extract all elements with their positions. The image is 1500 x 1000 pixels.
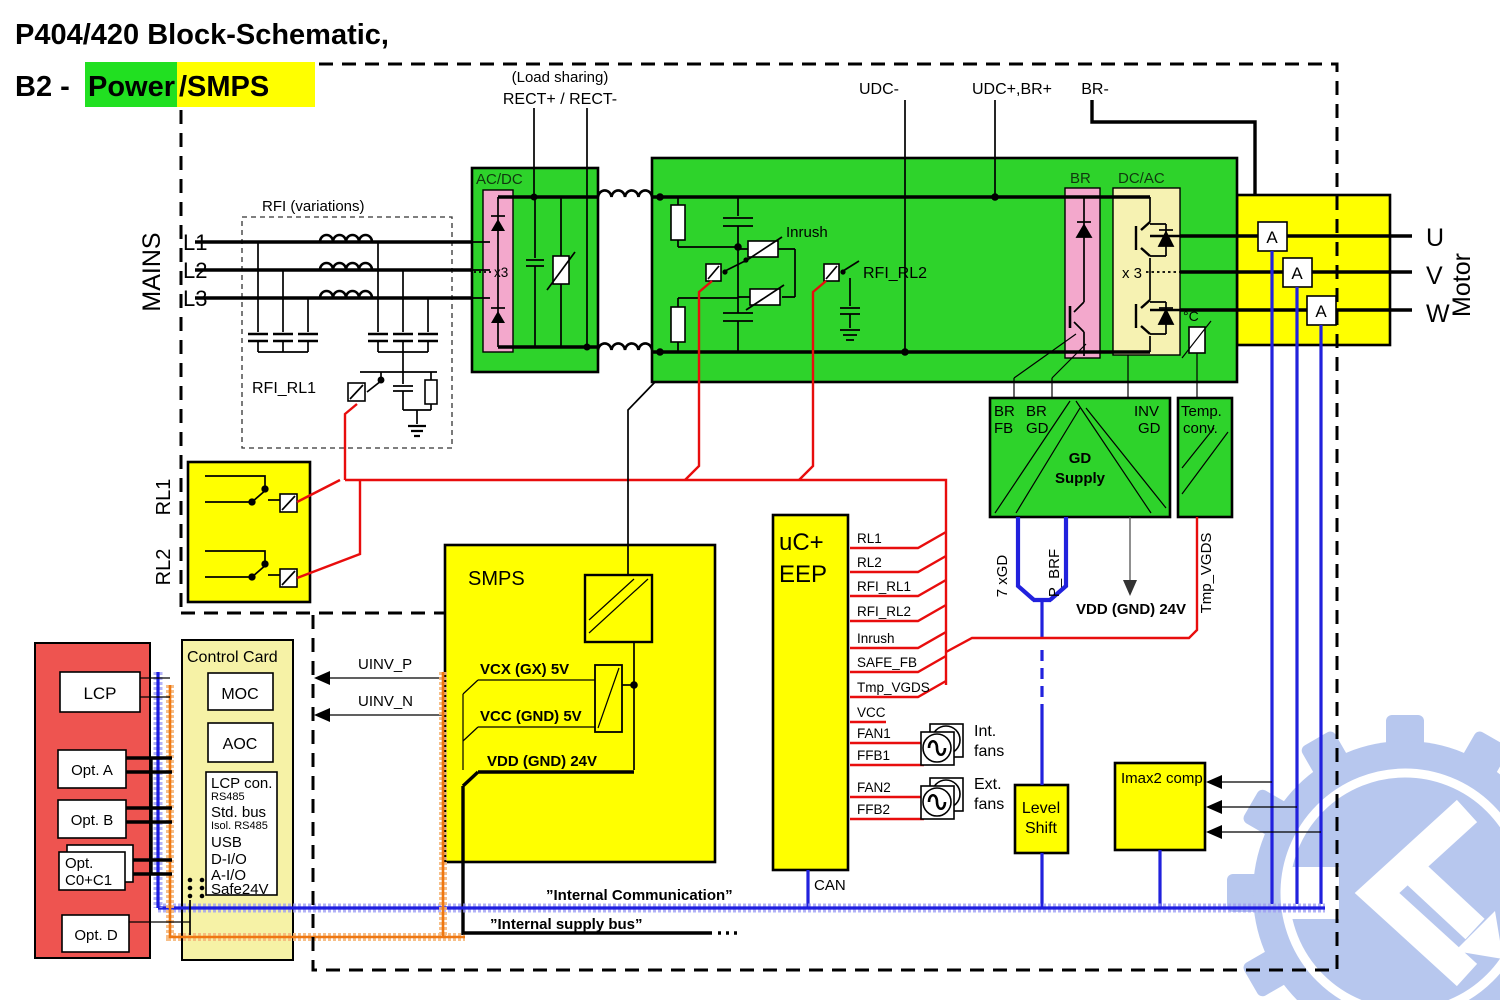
acdc-label: AC/DC (476, 171, 523, 188)
sig-rl2: RL2 (857, 555, 882, 570)
gd7-label: 7 xGD (994, 555, 1011, 598)
gd-br-gd-1: BR (1026, 403, 1047, 420)
temp-c-label: °C (1183, 308, 1199, 324)
sig-vcc: VCC (857, 705, 886, 720)
gd-inv-1: INV (1134, 403, 1159, 420)
mains-l1: L1 (183, 230, 207, 255)
aoc-label: AOC (223, 736, 258, 753)
amp-sensor-w-label: A (1315, 302, 1327, 321)
mains-l2: L2 (183, 258, 207, 283)
smps-block (445, 545, 715, 862)
phase-u-label: U (1426, 224, 1444, 252)
gd-supply-name-2: Supply (1055, 470, 1106, 487)
page-title-line2-prefix: B2 - (15, 71, 70, 103)
pbrf-label: P_BRF (1046, 549, 1063, 597)
gd-br-gd-2: GD (1026, 420, 1049, 437)
sig-ffb2: FFB2 (857, 802, 890, 817)
sig-fan2: FAN2 (857, 780, 891, 795)
io-std-bus: Std. bus (211, 804, 266, 821)
vcx-label: VCX (GX) 5V (480, 661, 569, 678)
inverter-x3-label: x 3 (1122, 265, 1142, 282)
internal-supply-bus-label: ”Internal supply bus” (490, 916, 643, 933)
temp-conv-2: conv. (1183, 420, 1218, 437)
schematic-page: P404/420 Block-Schematic, B2 - Power /SM… (0, 0, 1500, 1000)
rect-label: RECT+ / RECT- (503, 91, 617, 108)
opt-c-label-2: C0+C1 (65, 872, 112, 889)
gear-logo-watermark (1227, 715, 1500, 1000)
control-card-title: Control Card (187, 649, 278, 666)
gd-supply-name-1: GD (1069, 450, 1092, 467)
sig-inrush: Inrush (857, 631, 895, 646)
vdd-smps-label: VDD (GND) 24V (487, 753, 597, 770)
block-schematic: P404/420 Block-Schematic, B2 - Power /SM… (0, 0, 1500, 1000)
gd-br-fb-2: FB (994, 420, 1013, 437)
mains-label: MAINS (138, 232, 166, 311)
page-title-line1: P404/420 Block-Schematic, (15, 19, 389, 51)
imax2-label: Imax2 comp. (1121, 770, 1207, 787)
sig-rfi-rl1: RFI_RL1 (857, 579, 911, 594)
io-safe24v: Safe24V (211, 881, 269, 898)
opt-d-label: Opt. D (74, 927, 118, 944)
uc-name-2: EEP (779, 561, 827, 588)
io-rs485: RS485 (211, 791, 245, 803)
level-shift-2: Shift (1025, 820, 1058, 837)
sig-tmp-vgds: Tmp_VGDS (857, 680, 930, 695)
uc-name-1: uC+ (779, 529, 824, 556)
internal-fans-icon (921, 724, 963, 765)
br-strip-label: BR (1070, 170, 1091, 187)
motor-label: Motor (1448, 253, 1476, 317)
vcc5-label: VCC (GND) 5V (480, 708, 582, 725)
uinv-p-label: UINV_P (358, 656, 412, 673)
external-fans-icon (921, 778, 963, 819)
rfi-filter-circuit (248, 235, 438, 436)
io-isol-rs485: Isol. RS485 (211, 820, 268, 832)
ext-fans-1: Ext. (974, 776, 1002, 793)
br-minus-label: BR- (1081, 81, 1109, 98)
acdc-x3-label: x3 (494, 265, 508, 280)
uc-signal-wires (850, 532, 946, 819)
sig-ffb1: FFB1 (857, 748, 890, 763)
smps-title: SMPS (468, 568, 525, 590)
level-shift-block (1015, 785, 1068, 853)
amp-sensor-v-label: A (1291, 264, 1303, 283)
int-fans-1: Int. (974, 723, 996, 740)
page-title-power: Power (88, 71, 175, 103)
phase-w-label: W (1426, 300, 1450, 328)
temp-conv-1: Temp. (1181, 403, 1222, 420)
vdd-arrow (1123, 580, 1137, 596)
level-shift-1: Level (1022, 800, 1060, 817)
rl2-label: RL2 (153, 549, 175, 586)
rfi-rl2-label: RFI_RL2 (863, 265, 927, 282)
io-usb: USB (211, 834, 242, 851)
internal-communication-label: ”Internal Communication” (546, 887, 733, 904)
mains-l3: L3 (183, 286, 207, 311)
moc-label: MOC (221, 686, 258, 703)
int-fans-2: fans (974, 743, 1004, 760)
rfi-rl1-label: RFI_RL1 (252, 380, 316, 397)
gd-br-fb-1: BR (994, 403, 1015, 420)
br-strip (1065, 188, 1100, 358)
ext-fans-2: fans (974, 796, 1004, 813)
rl1-label: RL1 (153, 479, 175, 516)
opt-a-label: Opt. A (71, 762, 113, 779)
sig-rfi-rl2: RFI_RL2 (857, 604, 911, 619)
load-sharing-label: (Load sharing) (512, 69, 609, 86)
udc-plus-br-label: UDC+,BR+ (972, 81, 1052, 98)
amp-sensor-u-label: A (1266, 228, 1278, 247)
sig-rl1: RL1 (857, 531, 882, 546)
gd-inv-2: GD (1138, 420, 1161, 437)
io-dio: D-I/O (211, 851, 247, 868)
uinv-n-label: UINV_N (358, 693, 413, 710)
rfi-box-title: RFI (variations) (262, 198, 365, 215)
dcac-strip-label: DC/AC (1118, 170, 1165, 187)
io-lcp-con: LCP con. (211, 775, 272, 792)
lcp-label: LCP (83, 684, 116, 703)
udc-minus-label: UDC- (859, 81, 899, 98)
sig-safe-fb: SAFE_FB (857, 655, 917, 670)
dc-link-inductors (598, 190, 652, 350)
inrush-label: Inrush (786, 224, 828, 241)
vdd24-label: VDD (GND) 24V (1076, 601, 1186, 618)
opt-c-label-1: Opt. (65, 855, 93, 872)
can-label: CAN (814, 877, 846, 894)
sig-fan1: FAN1 (857, 726, 891, 741)
tmp-vgds-label: Tmp_VGDS (1198, 533, 1215, 614)
opt-b-label: Opt. B (71, 812, 114, 829)
phase-v-label: V (1426, 262, 1443, 290)
page-title-smps: /SMPS (179, 71, 269, 103)
